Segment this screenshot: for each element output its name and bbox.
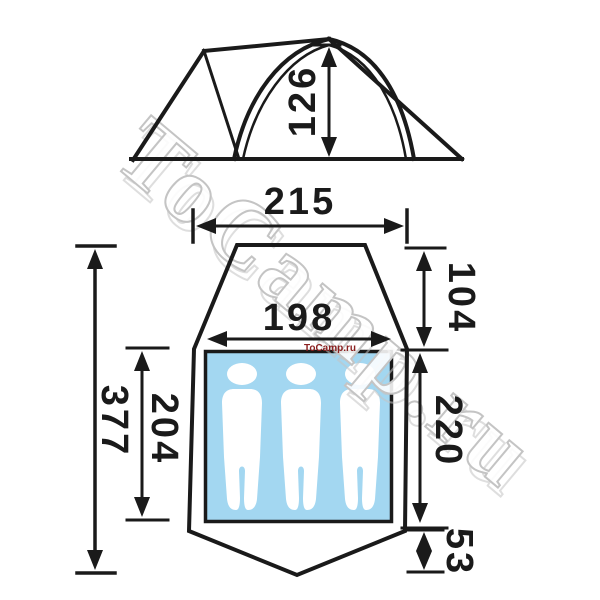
arrowhead-down bbox=[416, 551, 432, 570]
sleeper-head bbox=[227, 363, 257, 385]
dim-label-outer-width: 215 bbox=[264, 181, 336, 223]
dim-label-inner-length: 204 bbox=[143, 393, 185, 465]
dim-total-length-377: 377 bbox=[77, 246, 135, 573]
dim-rear-depth-53: 53 bbox=[405, 528, 480, 576]
watermark-small: ToCamp.ru bbox=[304, 343, 356, 354]
arrowhead-up bbox=[416, 532, 432, 551]
dim-label-inner-width: 198 bbox=[263, 297, 335, 339]
sleeper-head bbox=[286, 363, 316, 385]
arrowhead-up bbox=[134, 351, 150, 371]
arrowhead-right bbox=[384, 218, 404, 234]
dome-arc-right-inner bbox=[329, 45, 406, 159]
tent-diagram-svg: ToCamp.ru ToCamp.ru ToCamp.ru 126 215 bbox=[0, 0, 600, 600]
arrowhead-down bbox=[321, 137, 337, 157]
arrowhead-up bbox=[87, 249, 103, 269]
arrowhead-down bbox=[134, 497, 150, 517]
arrowhead-left bbox=[207, 331, 227, 347]
dim-label-total-length: 377 bbox=[93, 385, 135, 457]
dim-label-rear-depth: 53 bbox=[438, 528, 480, 576]
right-slope bbox=[329, 39, 462, 159]
arrowhead-down bbox=[87, 550, 103, 570]
arrowhead-down bbox=[412, 503, 428, 523]
arrowhead-up bbox=[416, 251, 432, 271]
dim-label-sleeping-length: 220 bbox=[427, 395, 469, 467]
tent-diagram: ToCamp.ru ToCamp.ru ToCamp.ru 126 215 bbox=[0, 0, 600, 600]
dim-label-height: 126 bbox=[282, 65, 324, 137]
dim-label-vestibule: 104 bbox=[440, 262, 482, 334]
arrowhead-up bbox=[321, 47, 337, 67]
dim-height-126: 126 bbox=[282, 45, 340, 157]
